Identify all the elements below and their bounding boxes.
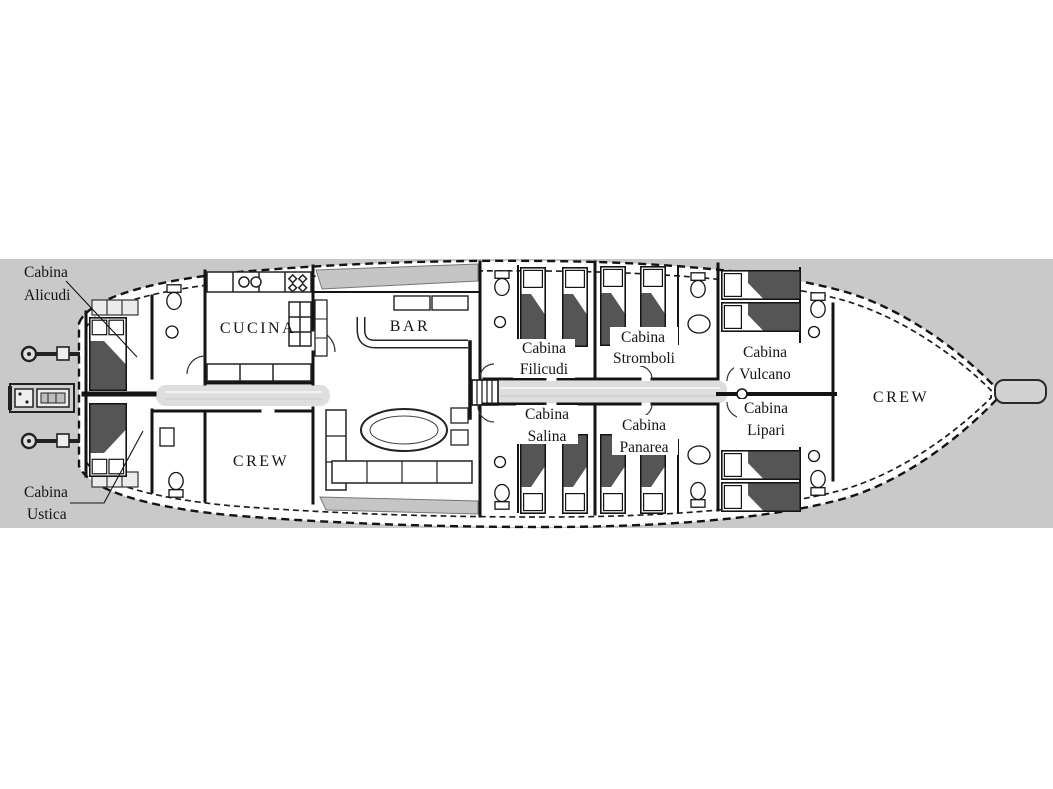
deck-plan-page: Cabina Alicudi Cabina Ustica CUCINA BAR … (0, 0, 1053, 789)
label-bar: BAR (390, 318, 430, 335)
deck-plan-figure: Cabina Alicudi Cabina Ustica CUCINA BAR … (0, 0, 1053, 789)
sink-icon (166, 326, 178, 338)
room-label: CREW (873, 389, 929, 406)
label-cabina-lipari: Cabina Lipari (737, 399, 795, 439)
toilet-icon (811, 471, 825, 496)
room-label: CREW (233, 453, 289, 470)
room-label: Salina (528, 428, 567, 445)
room-label: Cabina (522, 340, 566, 357)
shower-icon (688, 446, 710, 464)
bed (722, 271, 800, 299)
sink-icon (809, 451, 820, 462)
gangway-platform (8, 384, 74, 412)
galley-counter-bottom (207, 364, 311, 381)
room-label: Vulcano (739, 366, 791, 383)
corridor-end-knob (737, 389, 747, 399)
stern-locker-top (92, 300, 138, 315)
room-label: Cabina (24, 264, 68, 281)
toilet-icon (167, 285, 181, 310)
label-crew-bow: CREW (873, 389, 929, 406)
label-crew-aft: CREW (233, 453, 289, 470)
room-label: Panarea (619, 439, 668, 456)
room-label: Lipari (747, 422, 786, 439)
sink-icon (495, 317, 506, 328)
sink-icon (495, 457, 506, 468)
cabina-ustica-furniture (90, 404, 126, 476)
room-label: Cabina (622, 417, 666, 434)
bed (722, 483, 800, 511)
room-label: Ustica (27, 506, 67, 523)
bed (563, 268, 587, 346)
bed (722, 451, 800, 479)
salon-sofa (394, 296, 430, 310)
room-label: CUCINA (220, 320, 296, 337)
sink-icon (809, 327, 820, 338)
stairs (472, 380, 498, 405)
label-cabina-stromboli: Cabina Stromboli (610, 327, 678, 367)
dinette-table (361, 409, 447, 451)
toilet-icon (495, 271, 509, 296)
room-label: Cabina (24, 484, 68, 501)
toilet-icon (691, 483, 705, 508)
room-label: Alicudi (24, 287, 71, 304)
galley-sink (239, 277, 249, 287)
room-label: Cabina (621, 329, 665, 346)
bowsprit (995, 380, 1046, 403)
label-cabina-filicudi: Cabina Filicudi (513, 339, 575, 378)
room-label: Filicudi (520, 361, 569, 378)
bed-ustica (90, 404, 126, 476)
toilet-icon (495, 485, 509, 510)
room-label: Cabina (744, 400, 788, 417)
label-cucina: CUCINA (220, 320, 296, 337)
bed (722, 303, 800, 331)
room-label: Stromboli (613, 350, 676, 367)
bed (521, 435, 545, 513)
room-label: BAR (390, 318, 430, 335)
bed (563, 435, 587, 513)
cabina-alicudi-furniture (90, 318, 126, 390)
toilet-icon (691, 273, 705, 298)
bed-alicudi (90, 318, 126, 390)
shower-icon (688, 315, 710, 333)
bar-back-shelf (315, 300, 327, 356)
bed (521, 268, 545, 346)
room-label: Cabina (525, 406, 569, 423)
label-cabina-panarea: Cabina Panarea (612, 415, 678, 456)
stool (451, 408, 468, 423)
corridor-aft (156, 385, 330, 406)
label-cabina-salina: Cabina Salina (516, 405, 578, 445)
toilet-icon (811, 293, 825, 318)
corridor-guest (492, 381, 727, 403)
toilet-icon (169, 473, 183, 498)
room-label: Cabina (743, 344, 787, 361)
label-cabina-vulcano: Cabina Vulcano (734, 342, 796, 383)
